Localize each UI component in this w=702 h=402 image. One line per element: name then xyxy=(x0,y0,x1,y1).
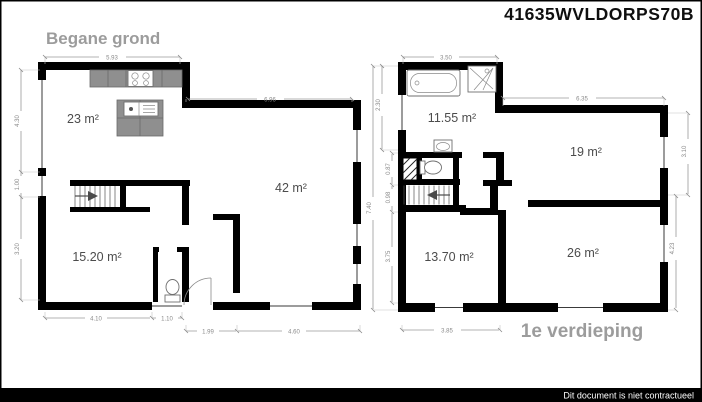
first-floor-title: 1e verdieping xyxy=(521,321,644,342)
ground-floor-plan: Begane grond xyxy=(15,29,362,336)
dim-label-ff-left-total: 7.40 xyxy=(367,202,373,214)
dim-label-gf-left-door: 1.00 xyxy=(15,178,21,190)
ground-floor-title: Begane grond xyxy=(46,29,160,48)
ff-interior-walls xyxy=(398,152,668,312)
dim-label-ff-left-bathroom: 2.30 xyxy=(376,99,382,111)
kitchen-counter xyxy=(90,70,182,87)
dim-label-gf-bottom-window: 1.10 xyxy=(161,317,173,323)
ff-dimensions: 3.50 6.35 2.30 7.40 0.87 0.98 3.75 3.85 … xyxy=(367,55,690,335)
dim-label-gf-bottom-door: 1.99 xyxy=(202,330,214,336)
disclaimer-text: Dit document is niet contractueel xyxy=(563,391,694,401)
ff-exterior-walls xyxy=(398,62,668,312)
gf-stairs-up-arrow xyxy=(88,191,98,201)
first-floor-plan: 11.55 m² 19 m² 26 m² 13.70 m² 3.50 6.35 … xyxy=(367,55,690,342)
shaft-hatch-icon xyxy=(403,158,417,180)
dim-label-ff-right-lower: 4.23 xyxy=(670,242,676,254)
room-label-bedroom-front: 13.70 m² xyxy=(424,250,473,264)
shower-icon xyxy=(468,66,496,92)
room-label-front-room: 15.20 m² xyxy=(72,250,121,264)
ff-stairs-icon xyxy=(404,186,450,205)
room-label-bathroom: 11.55 m² xyxy=(428,111,476,125)
dim-label-gf-bottom-left: 4.10 xyxy=(90,317,102,323)
kitchen-island xyxy=(117,100,163,136)
ff-toilet-icon xyxy=(420,161,442,174)
stove-icon xyxy=(128,71,153,87)
dim-label-gf-bottom-right: 4.60 xyxy=(288,330,300,336)
dim-label-ff-left-front: 3.75 xyxy=(386,250,392,262)
dim-label-ff-top-bathroom: 3.50 xyxy=(440,56,452,62)
room-label-kitchen: 23 m² xyxy=(67,112,99,126)
dim-label-ff-top-bedroom: 6.35 xyxy=(576,97,588,103)
dim-label-gf-left-lower: 3.20 xyxy=(15,243,21,255)
floorplan-page: Begane grond xyxy=(0,0,702,402)
footer-bar: Dit document is niet contractueel xyxy=(0,388,702,402)
room-label-living: 42 m² xyxy=(275,181,307,195)
dim-label-ff-right-upper: 3.10 xyxy=(682,145,688,157)
dim-label-ff-bottom-front: 3.85 xyxy=(441,329,453,335)
dim-label-ff-left-stairs: 0.98 xyxy=(386,191,392,203)
dim-label-gf-top-kitchen: 5.93 xyxy=(106,56,118,62)
gf-interior-walls xyxy=(70,180,240,302)
gf-toilet-icon xyxy=(165,280,180,303)
bathtub-icon xyxy=(407,70,460,96)
sink-icon xyxy=(124,102,158,116)
reference-code: 41635WVLDORPS70B xyxy=(504,4,694,24)
washbasin-icon xyxy=(434,140,452,152)
dim-label-gf-left-upper: 4.30 xyxy=(15,115,21,127)
dim-label-ff-left-wc: 0.87 xyxy=(386,163,392,175)
room-label-bedroom-back: 26 m² xyxy=(567,246,599,260)
gf-stairs-icon xyxy=(75,186,115,207)
room-label-bedroom-right: 19 m² xyxy=(570,145,602,159)
dim-label-gf-top-living: 6.96 xyxy=(264,98,276,104)
ff-stairs-down-arrow xyxy=(427,190,437,200)
floorplan-canvas: Begane grond xyxy=(0,0,702,402)
